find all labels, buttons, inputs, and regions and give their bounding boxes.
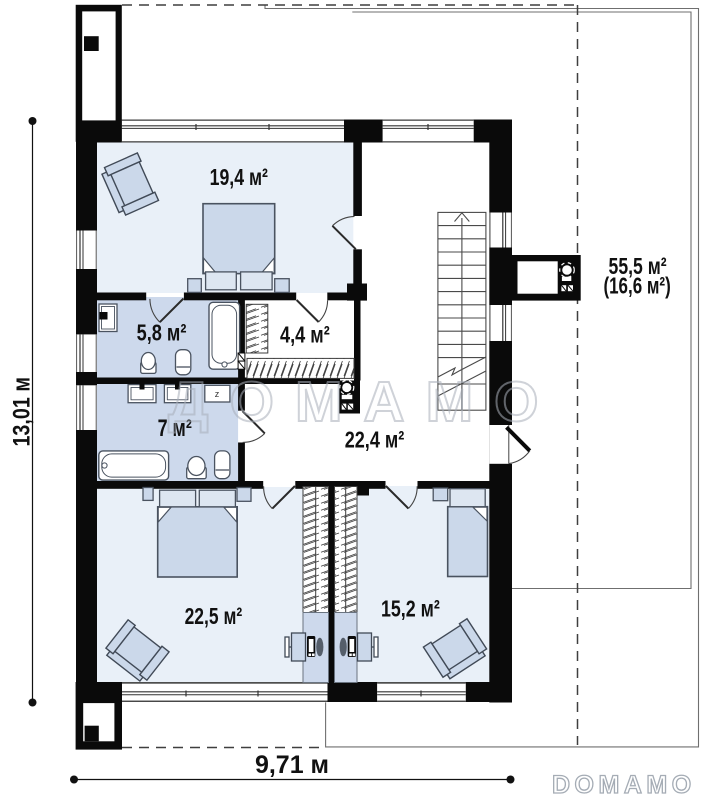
svg-text:ДОМАМО: ДОМАМО — [168, 370, 559, 434]
svg-text:(16,6 м²): (16,6 м²) — [603, 273, 670, 299]
svg-text:22,5 м²: 22,5 м² — [185, 603, 243, 629]
svg-text:9,71 м: 9,71 м — [255, 751, 329, 779]
svg-text:4,4 м²: 4,4 м² — [280, 322, 330, 348]
svg-text:5,8 м²: 5,8 м² — [137, 320, 187, 346]
svg-text:15,2 м²: 15,2 м² — [381, 595, 440, 621]
svg-text:13,01 м: 13,01 м — [9, 377, 36, 447]
svg-text:DOMAMO: DOMAMO — [552, 771, 696, 799]
svg-text:19,4 м²: 19,4 м² — [210, 164, 268, 190]
